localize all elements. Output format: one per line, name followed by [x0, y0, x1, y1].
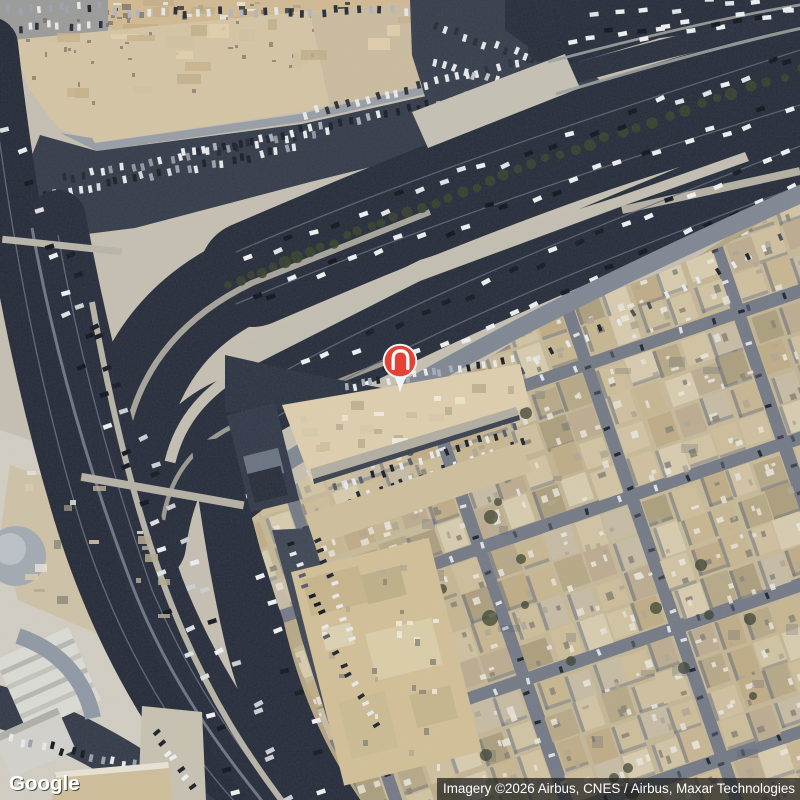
svg-text:Imagery ©2026 Airbus, CNES / A: Imagery ©2026 Airbus, CNES / Airbus, Max…: [443, 781, 795, 796]
svg-text:Google: Google: [9, 772, 80, 795]
